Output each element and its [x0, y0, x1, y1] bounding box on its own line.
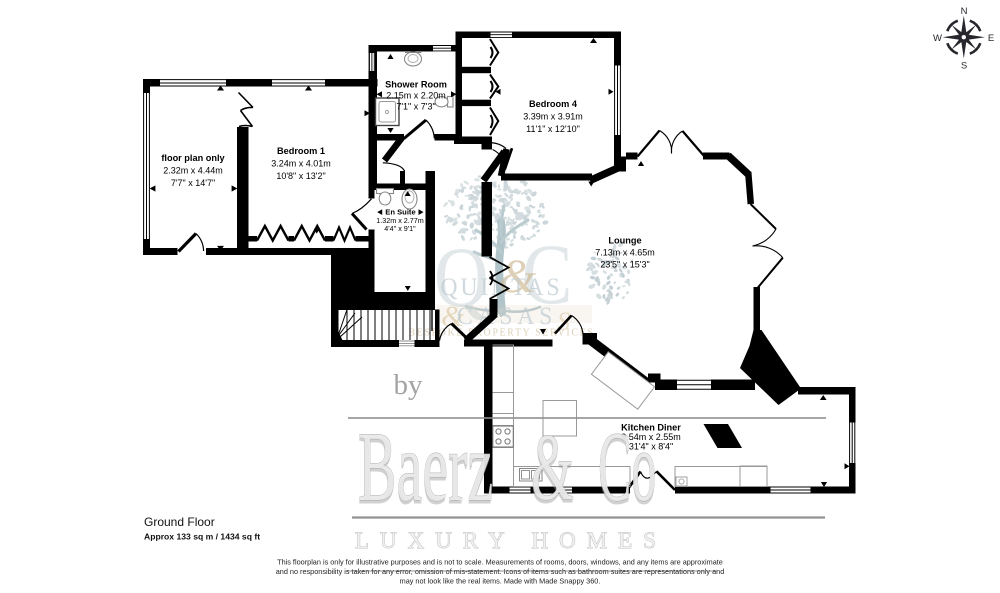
svg-text:3.24m x 4.01m: 3.24m x 4.01m — [271, 159, 331, 169]
svg-text:Baerz: Baerz — [358, 411, 493, 522]
svg-text:7'1" x 7'3": 7'1" x 7'3" — [396, 102, 435, 112]
svg-text:W: W — [933, 33, 942, 44]
svg-text:This floorplan is only for ill: This floorplan is only for illustrative … — [277, 557, 723, 566]
svg-text:floor plan only: floor plan only — [161, 153, 225, 163]
svg-text:by: by — [394, 369, 424, 401]
svg-text:S: S — [961, 61, 967, 72]
svg-text:2.32m x 4.44m: 2.32m x 4.44m — [163, 166, 223, 176]
svg-text:23'5" x 15'3": 23'5" x 15'3" — [600, 260, 649, 270]
svg-text:Ground Floor: Ground Floor — [144, 515, 215, 529]
svg-text:10'8" x 13'2": 10'8" x 13'2" — [276, 171, 325, 181]
svg-text:3.39m x 3.91m: 3.39m x 3.91m — [523, 112, 583, 122]
svg-text:&: & — [531, 415, 574, 520]
svg-text:Shower Room: Shower Room — [385, 80, 447, 90]
svg-text:4'4" x 9'1": 4'4" x 9'1" — [384, 224, 416, 233]
svg-text:Bedroom 1: Bedroom 1 — [277, 146, 325, 156]
svg-text:Approx 133 sq m / 1434 sq ft: Approx 133 sq m / 1434 sq ft — [144, 532, 260, 542]
svg-text:Co: Co — [598, 413, 656, 523]
svg-text:Lounge: Lounge — [608, 236, 641, 246]
svg-text:CASAS: CASAS — [457, 302, 557, 330]
svg-text:QUINTAS: QUINTAS — [440, 273, 562, 301]
svg-text:7.13m x 4.65m: 7.13m x 4.65m — [595, 248, 655, 258]
svg-text:LUXURY HOMES: LUXURY HOMES — [355, 528, 667, 553]
svg-text:E: E — [988, 33, 994, 44]
svg-text:2.15m x 2.20m: 2.15m x 2.20m — [386, 91, 446, 101]
svg-text:7'7" x 14'7": 7'7" x 14'7" — [171, 178, 215, 188]
svg-text:N: N — [961, 6, 968, 17]
svg-text:Bedroom 4: Bedroom 4 — [529, 99, 578, 109]
svg-text:11'1" x 12'10": 11'1" x 12'10" — [526, 124, 580, 134]
svg-text:may not look like the real ite: may not look like the real items. Made w… — [400, 576, 601, 585]
